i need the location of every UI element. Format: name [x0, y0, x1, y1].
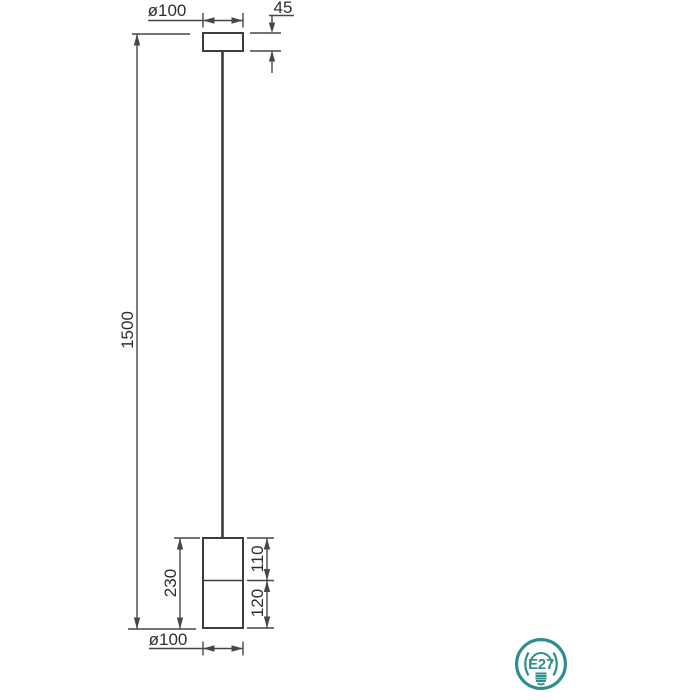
dim-canopy-height-label: 45 — [274, 0, 293, 17]
dim-canopy-diameter-label: ø100 — [148, 1, 187, 20]
ceiling-canopy — [203, 33, 243, 51]
dim-shade-height-label: 230 — [161, 569, 180, 597]
e27-right-paren — [554, 653, 557, 676]
pendant-fixture — [203, 33, 243, 628]
dim-shade-height: 230 — [161, 538, 200, 629]
dim-canopy-height: 45 — [250, 0, 294, 73]
dim-overall-drop-lines — [128, 34, 196, 629]
e27-screw-base-icon — [536, 674, 547, 685]
dim-canopy-height-arrows — [269, 23, 275, 62]
product-dimension-diagram: ø100 45 1500 230 110 120 — [0, 0, 700, 700]
drawing-canvas: ø100 45 1500 230 110 120 — [0, 0, 700, 700]
lamp-shade — [203, 538, 243, 628]
dim-shade-sections: 110 120 — [247, 538, 274, 628]
e27-label: E27 — [528, 656, 554, 673]
e27-socket-icon: E27 — [517, 640, 566, 689]
dim-shade-diameter-label: ø100 — [149, 630, 188, 649]
dim-shade-diameter: ø100 — [149, 630, 243, 656]
dim-canopy-diameter: ø100 — [148, 1, 243, 28]
dim-overall-drop-label: 1500 — [118, 311, 137, 349]
dim-shade-upper-label: 110 — [248, 545, 267, 572]
dim-overall-drop: 1500 — [118, 34, 196, 629]
dim-shade-lower-label: 120 — [248, 589, 267, 617]
